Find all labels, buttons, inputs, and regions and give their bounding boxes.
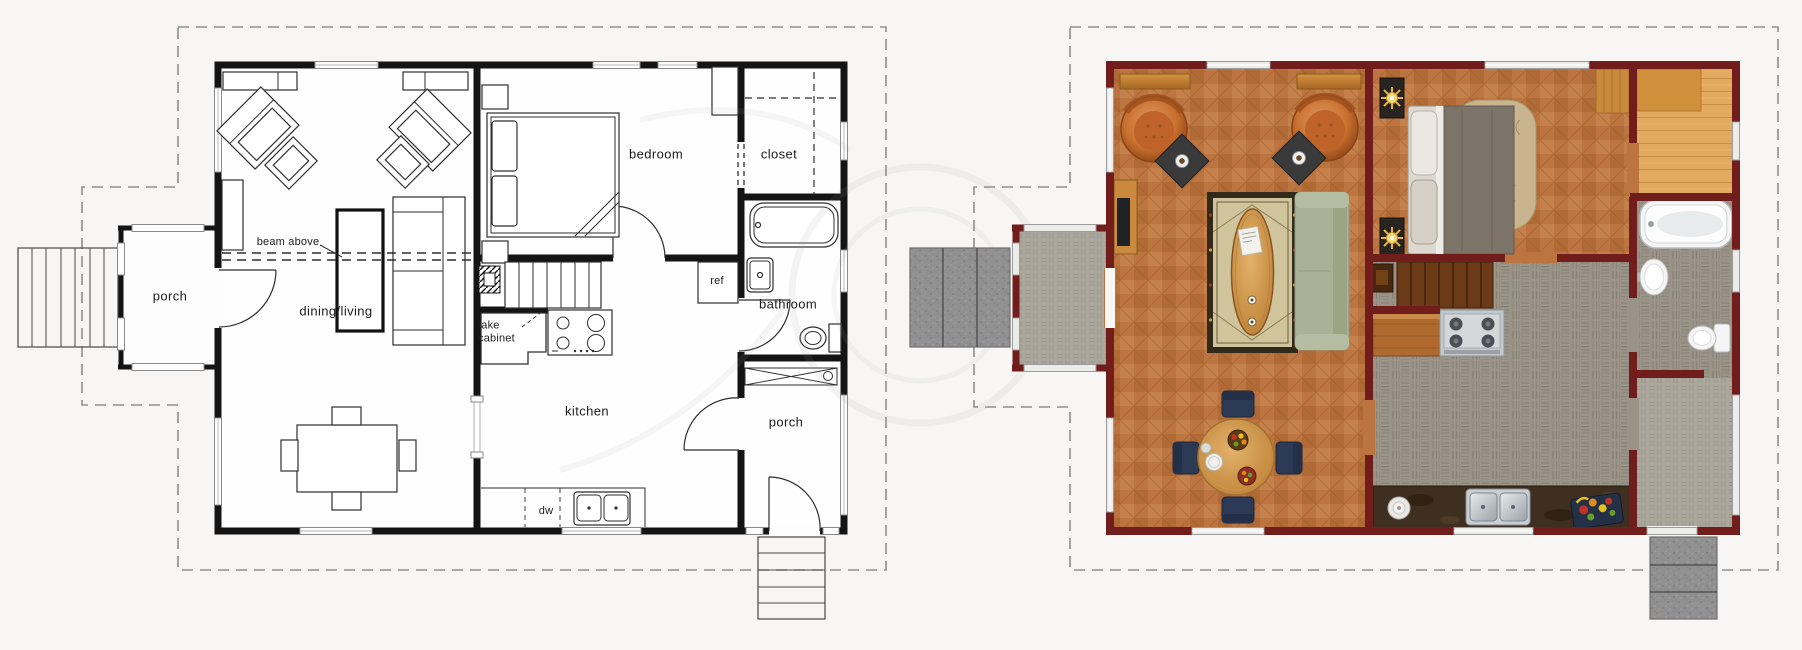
label-bedroom: bedroom	[629, 147, 683, 162]
right-entry-door-gap	[1105, 268, 1115, 328]
left-porch-door-gap	[769, 526, 820, 536]
right-steps-west	[910, 248, 1010, 347]
pillow	[1411, 180, 1437, 244]
label-dw: dw	[539, 505, 553, 517]
dining-chair	[1173, 442, 1199, 474]
label-beam-above: beam above	[257, 236, 320, 248]
opening-floor	[1627, 143, 1639, 197]
stairs	[505, 262, 601, 308]
dining-chair	[1276, 442, 1302, 474]
salad-bowl	[1238, 467, 1256, 485]
label-dining-living: dining/living	[299, 304, 372, 319]
tv	[1117, 198, 1130, 246]
nightstand	[482, 85, 508, 109]
sunburst-lamp	[1381, 227, 1403, 249]
porch-west-paver-floor	[1018, 228, 1110, 368]
floor-plan-canvas: bedroom closet bathroom kitchen dining/l…	[0, 0, 1802, 650]
label-closet: closet	[761, 147, 797, 162]
stove	[548, 310, 612, 355]
label-fake-cabinet: fake cabinet	[478, 319, 530, 344]
right-steps-south	[1650, 537, 1717, 619]
tub-faucet	[756, 223, 761, 228]
kitchen-sink-rendered	[1466, 489, 1530, 525]
closet-shelf	[1637, 69, 1701, 111]
left-steps-west	[18, 248, 118, 347]
floor-plan-drawing	[0, 0, 1802, 650]
small-plate	[1201, 443, 1211, 453]
nightstand	[482, 241, 508, 263]
left-steps-south	[758, 537, 825, 619]
pillow	[1411, 111, 1437, 175]
pillow	[492, 176, 517, 226]
right-plan	[910, 27, 1778, 619]
porch-se-paver-floor	[1637, 378, 1733, 527]
label-bathroom: bathroom	[759, 297, 817, 312]
wall-cabinet	[222, 180, 243, 250]
fruit-tray	[1570, 493, 1624, 530]
label-ref: ref	[710, 275, 723, 287]
oval-coffee-table	[1232, 209, 1274, 335]
window-bench	[403, 72, 468, 90]
wood-stairs	[1397, 262, 1493, 308]
tub-faucet	[1648, 221, 1654, 227]
duvet	[1444, 106, 1514, 254]
magazine	[1238, 226, 1262, 255]
sofa-outline	[393, 197, 465, 345]
opening-floor	[1363, 400, 1375, 455]
opening-floor	[1627, 298, 1639, 352]
opening-floor	[1627, 398, 1639, 450]
sofa	[1295, 192, 1349, 350]
fruit-bowl	[1228, 430, 1248, 450]
dining-chair	[1222, 391, 1254, 417]
pillow	[492, 121, 517, 171]
label-porch-south: porch	[769, 415, 804, 430]
wood-bench	[1120, 74, 1190, 89]
bedroom-nook-cabinet	[1596, 69, 1629, 113]
dining-chair	[1222, 497, 1254, 523]
wood-bench	[1297, 74, 1361, 89]
stove-rendered	[1440, 310, 1504, 356]
label-porch-west: porch	[153, 289, 188, 304]
chimney-flue	[1376, 270, 1388, 285]
left-entry-door-gap	[213, 268, 223, 328]
double-sink	[574, 492, 630, 525]
sunburst-lamp	[1381, 87, 1403, 109]
label-kitchen: kitchen	[565, 404, 609, 419]
